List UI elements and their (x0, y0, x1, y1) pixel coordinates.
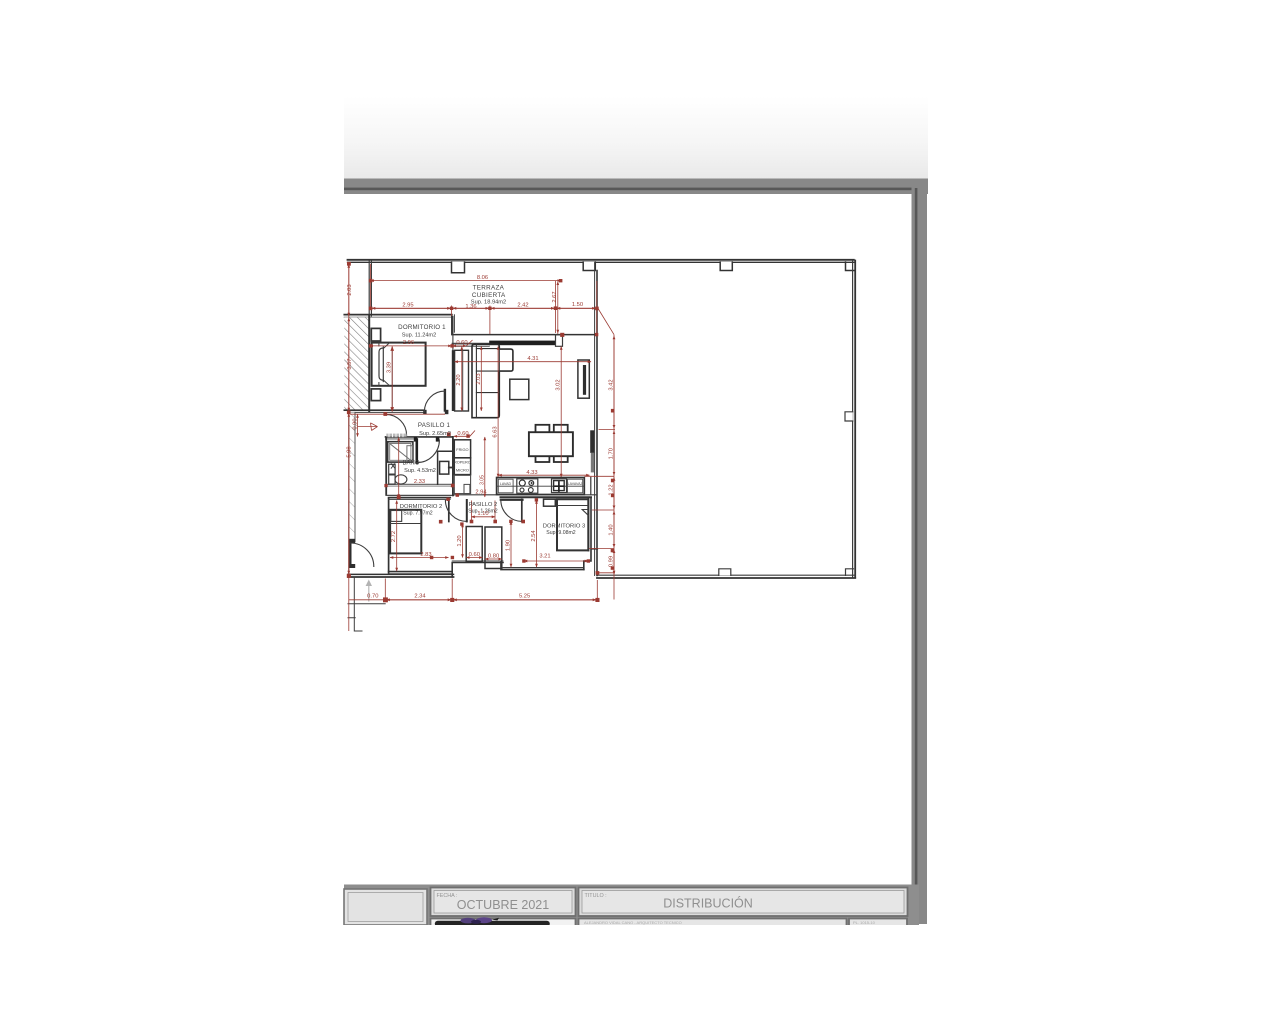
svg-text:2.83: 2.83 (420, 552, 431, 558)
svg-text:CUBIERTA: CUBIERTA (472, 292, 506, 299)
svg-text:1.50: 1.50 (572, 302, 583, 308)
svg-text:FECHA :: FECHA : (437, 893, 458, 899)
svg-text:1.40: 1.40 (608, 524, 614, 535)
svg-text:PL. 1015-10: PL. 1015-10 (853, 920, 876, 925)
svg-text:2.95: 2.95 (402, 303, 413, 309)
svg-text:DORMITORIO 1: DORMITORIO 1 (398, 324, 446, 331)
svg-text:2.54: 2.54 (531, 530, 537, 542)
svg-text:PASILLO 1: PASILLO 1 (418, 422, 451, 429)
svg-text:BAÑO: BAÑO (402, 460, 419, 467)
svg-text:2.34: 2.34 (414, 594, 426, 600)
svg-text:Sup. 7.97m2: Sup. 7.97m2 (403, 511, 433, 517)
svg-text:2.42: 2.42 (517, 303, 528, 309)
svg-text:DORMITORIO 3: DORMITORIO 3 (543, 524, 585, 530)
svg-text:1.22: 1.22 (608, 484, 614, 495)
svg-text:3.57: 3.57 (347, 358, 353, 369)
svg-text:2.96: 2.96 (403, 340, 414, 346)
svg-text:MICRO: MICRO (456, 467, 469, 472)
svg-text:2.67: 2.67 (552, 291, 558, 302)
svg-text:Sup. 4.53m2: Sup. 4.53m2 (404, 468, 436, 474)
svg-text:1.20: 1.20 (457, 535, 463, 546)
svg-text:2.72: 2.72 (391, 531, 397, 542)
svg-text:LAVAD: LAVAD (500, 482, 512, 486)
svg-text:1.90: 1.90 (506, 540, 512, 551)
svg-text:5.25: 5.25 (519, 594, 530, 600)
svg-text:3.39: 3.39 (387, 362, 393, 373)
svg-text:1.10: 1.10 (477, 511, 488, 517)
svg-text:TERRAZA: TERRAZA (473, 285, 505, 292)
svg-text:6.63: 6.63 (493, 426, 499, 437)
svg-text:3.02: 3.02 (556, 379, 562, 390)
svg-text:0.99: 0.99 (608, 556, 614, 567)
svg-text:LAVAVAJ: LAVAVAJ (568, 482, 583, 486)
svg-text:FRIGO: FRIGO (456, 447, 468, 452)
svg-text:2.20: 2.20 (456, 374, 462, 385)
svg-text:PASILLO 2: PASILLO 2 (469, 502, 498, 508)
svg-text:0.60: 0.60 (457, 431, 468, 437)
svg-text:2.94: 2.94 (475, 490, 487, 496)
svg-text:Sup. 11.24m2: Sup. 11.24m2 (402, 333, 436, 339)
svg-text:3.42: 3.42 (608, 379, 614, 390)
svg-text:5.98: 5.98 (347, 446, 353, 457)
svg-text:2.03: 2.03 (476, 373, 482, 384)
svg-text:ROPERO: ROPERO (454, 460, 471, 465)
svg-text:8.06: 8.06 (477, 275, 488, 281)
svg-text:4.33: 4.33 (526, 470, 537, 476)
svg-text:0.60: 0.60 (469, 552, 480, 558)
svg-text:3.21: 3.21 (539, 554, 550, 560)
svg-text:0.60: 0.60 (456, 340, 467, 346)
svg-text:1.36: 1.36 (465, 304, 476, 310)
svg-text:ALEJANDRO VIDAL CANO - ARQUITE: ALEJANDRO VIDAL CANO - ARQUITECTO TECNIC… (584, 920, 682, 925)
svg-text:TITULO :: TITULO : (585, 893, 607, 899)
svg-text:3.05: 3.05 (480, 475, 486, 485)
svg-text:4.31: 4.31 (527, 356, 538, 362)
svg-text:0.70: 0.70 (367, 594, 378, 600)
svg-text:2.33: 2.33 (414, 479, 425, 485)
svg-text:Sup. 2.65m2: Sup. 2.65m2 (419, 431, 451, 437)
svg-text:OCTUBRE 2021: OCTUBRE 2021 (457, 898, 549, 912)
svg-text:1.70: 1.70 (608, 448, 614, 459)
svg-text:0.90: 0.90 (352, 418, 358, 429)
svg-text:0.80: 0.80 (488, 554, 499, 560)
svg-text:2.03: 2.03 (347, 284, 353, 295)
svg-text:DISTRIBUCIÓN: DISTRIBUCIÓN (663, 896, 753, 911)
svg-text:DORMITORIO 2: DORMITORIO 2 (400, 504, 442, 510)
svg-text:Sup. 9.08m2: Sup. 9.08m2 (546, 530, 576, 536)
